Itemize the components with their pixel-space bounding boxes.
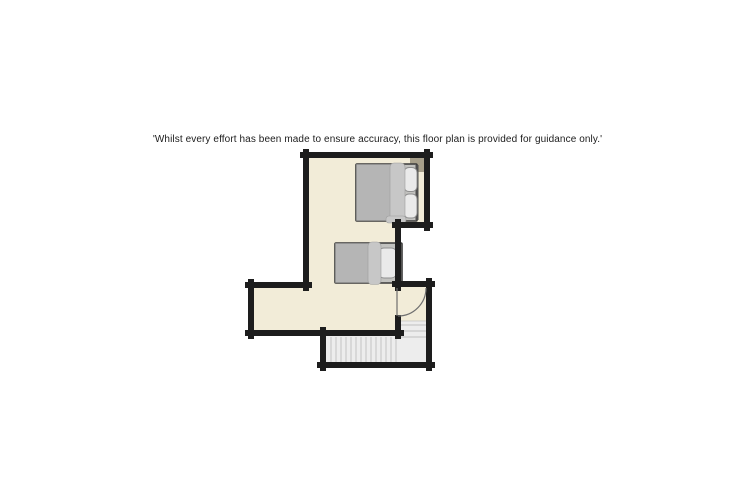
floorplan-canvas [0, 0, 755, 504]
single-bed-icon [335, 242, 402, 285]
page: 'Whilst every effort has been made to en… [0, 0, 755, 504]
double-bed-icon [356, 163, 419, 223]
